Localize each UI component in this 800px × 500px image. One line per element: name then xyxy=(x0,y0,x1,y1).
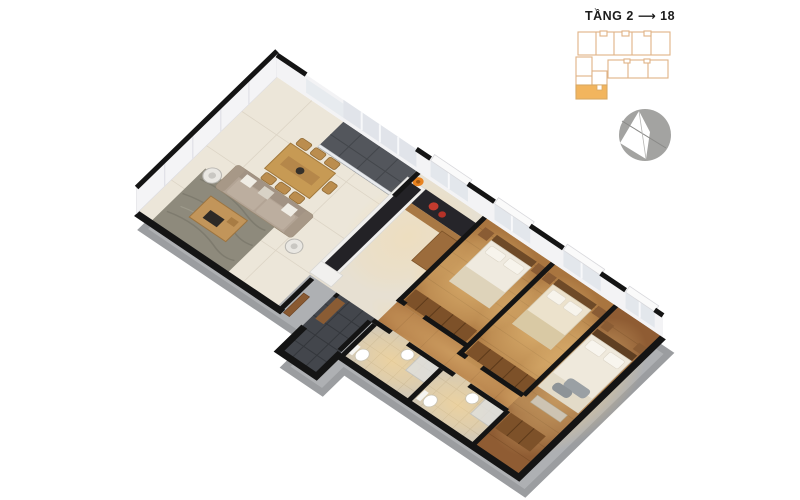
compass-icon xyxy=(619,109,671,161)
keyplan xyxy=(576,31,670,99)
floor-range-label: TẦNG 2 ⟶ 18 xyxy=(585,8,675,23)
floorplan-3d: TẦNG 2 ⟶ 18 xyxy=(0,0,800,500)
floorplan-page: TẦNG 2 ⟶ 18 xyxy=(0,0,800,500)
